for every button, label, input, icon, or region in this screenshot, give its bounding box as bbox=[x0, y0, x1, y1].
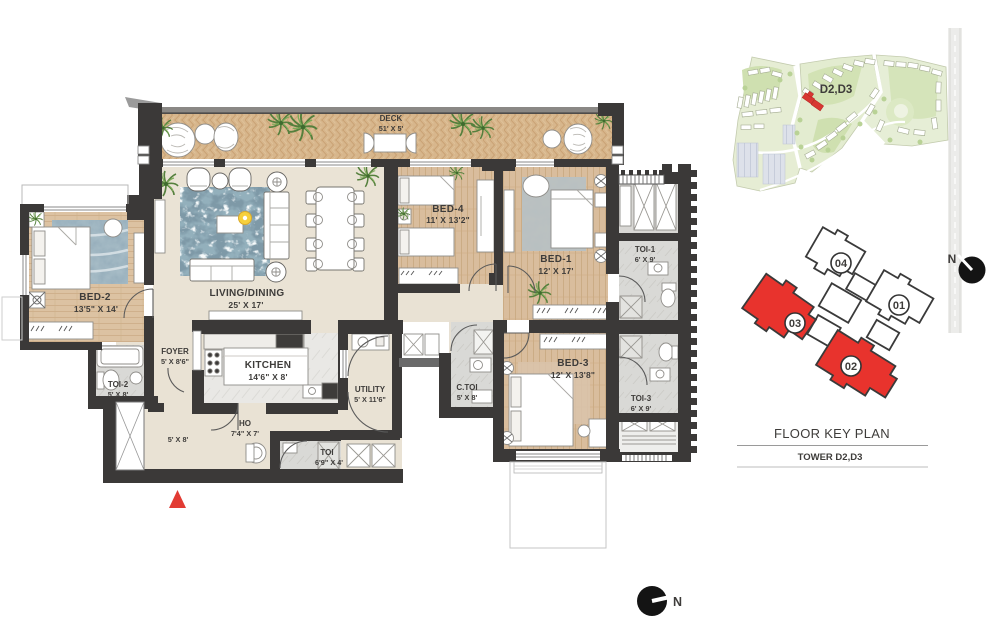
svg-text:D2,D3: D2,D3 bbox=[820, 84, 853, 96]
svg-text:KITCHEN: KITCHEN bbox=[245, 360, 292, 371]
svg-text:TOI-3: TOI-3 bbox=[631, 394, 652, 403]
svg-text:7'4" X 7': 7'4" X 7' bbox=[231, 429, 259, 438]
svg-text:6'9" X 4': 6'9" X 4' bbox=[315, 458, 343, 467]
svg-text:5' X 8': 5' X 8' bbox=[108, 390, 129, 399]
svg-text:HO: HO bbox=[239, 419, 251, 428]
svg-text:5' X 11'6": 5' X 11'6" bbox=[354, 395, 386, 404]
svg-text:12' X 13'8": 12' X 13'8" bbox=[551, 370, 595, 380]
svg-text:6' X 9': 6' X 9' bbox=[635, 255, 656, 264]
svg-text:03: 03 bbox=[789, 318, 801, 330]
svg-text:5' X 8': 5' X 8' bbox=[168, 435, 189, 444]
svg-text:12' X 17': 12' X 17' bbox=[538, 266, 573, 276]
svg-text:BED-2: BED-2 bbox=[79, 292, 111, 303]
svg-text:5' X 8': 5' X 8' bbox=[457, 393, 478, 402]
svg-text:DECK: DECK bbox=[380, 114, 403, 123]
svg-text:TOI-2: TOI-2 bbox=[108, 380, 129, 389]
svg-text:14'6" X 8': 14'6" X 8' bbox=[248, 372, 287, 382]
svg-text:02: 02 bbox=[845, 361, 857, 373]
svg-text:BED-4: BED-4 bbox=[432, 204, 464, 215]
svg-text:FLOOR KEY PLAN: FLOOR KEY PLAN bbox=[774, 426, 890, 441]
svg-text:01: 01 bbox=[893, 300, 905, 312]
svg-text:TOWER D2,D3: TOWER D2,D3 bbox=[798, 452, 863, 463]
svg-text:LIVING/DINING: LIVING/DINING bbox=[209, 288, 284, 299]
svg-text:TOI: TOI bbox=[320, 448, 333, 457]
svg-text:25' X 17': 25' X 17' bbox=[228, 300, 263, 310]
svg-text:5' X 8'6": 5' X 8'6" bbox=[161, 357, 189, 366]
svg-text:UTILITY: UTILITY bbox=[355, 385, 386, 394]
svg-text:51' X 5': 51' X 5' bbox=[379, 124, 404, 133]
svg-text:6' X 9': 6' X 9' bbox=[631, 404, 652, 413]
svg-text:C.TOI: C.TOI bbox=[456, 383, 477, 392]
svg-text:BED-3: BED-3 bbox=[557, 358, 589, 369]
svg-text:FOYER: FOYER bbox=[161, 347, 189, 356]
svg-text:N: N bbox=[948, 252, 957, 266]
svg-text:N: N bbox=[673, 595, 682, 609]
svg-text:11' X 13'2": 11' X 13'2" bbox=[426, 215, 470, 225]
svg-text:TOI-1: TOI-1 bbox=[635, 245, 656, 254]
svg-text:13'5" X 14': 13'5" X 14' bbox=[74, 304, 118, 314]
svg-text:04: 04 bbox=[835, 258, 848, 270]
svg-text:BED-1: BED-1 bbox=[540, 254, 572, 265]
